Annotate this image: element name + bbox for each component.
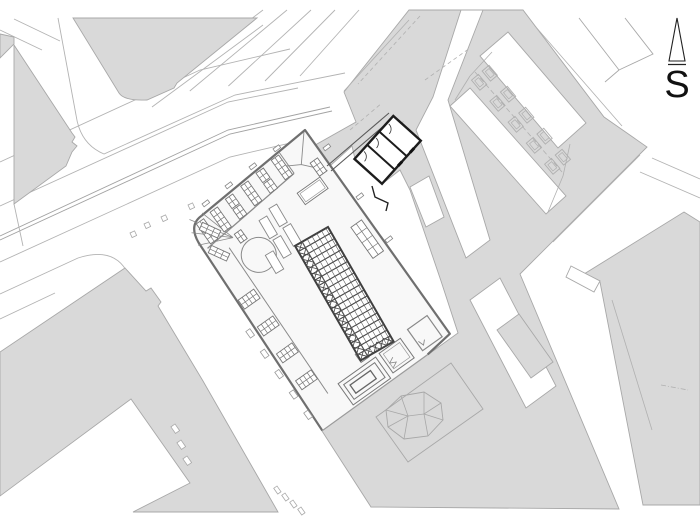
svg-text:S: S <box>664 64 689 106</box>
